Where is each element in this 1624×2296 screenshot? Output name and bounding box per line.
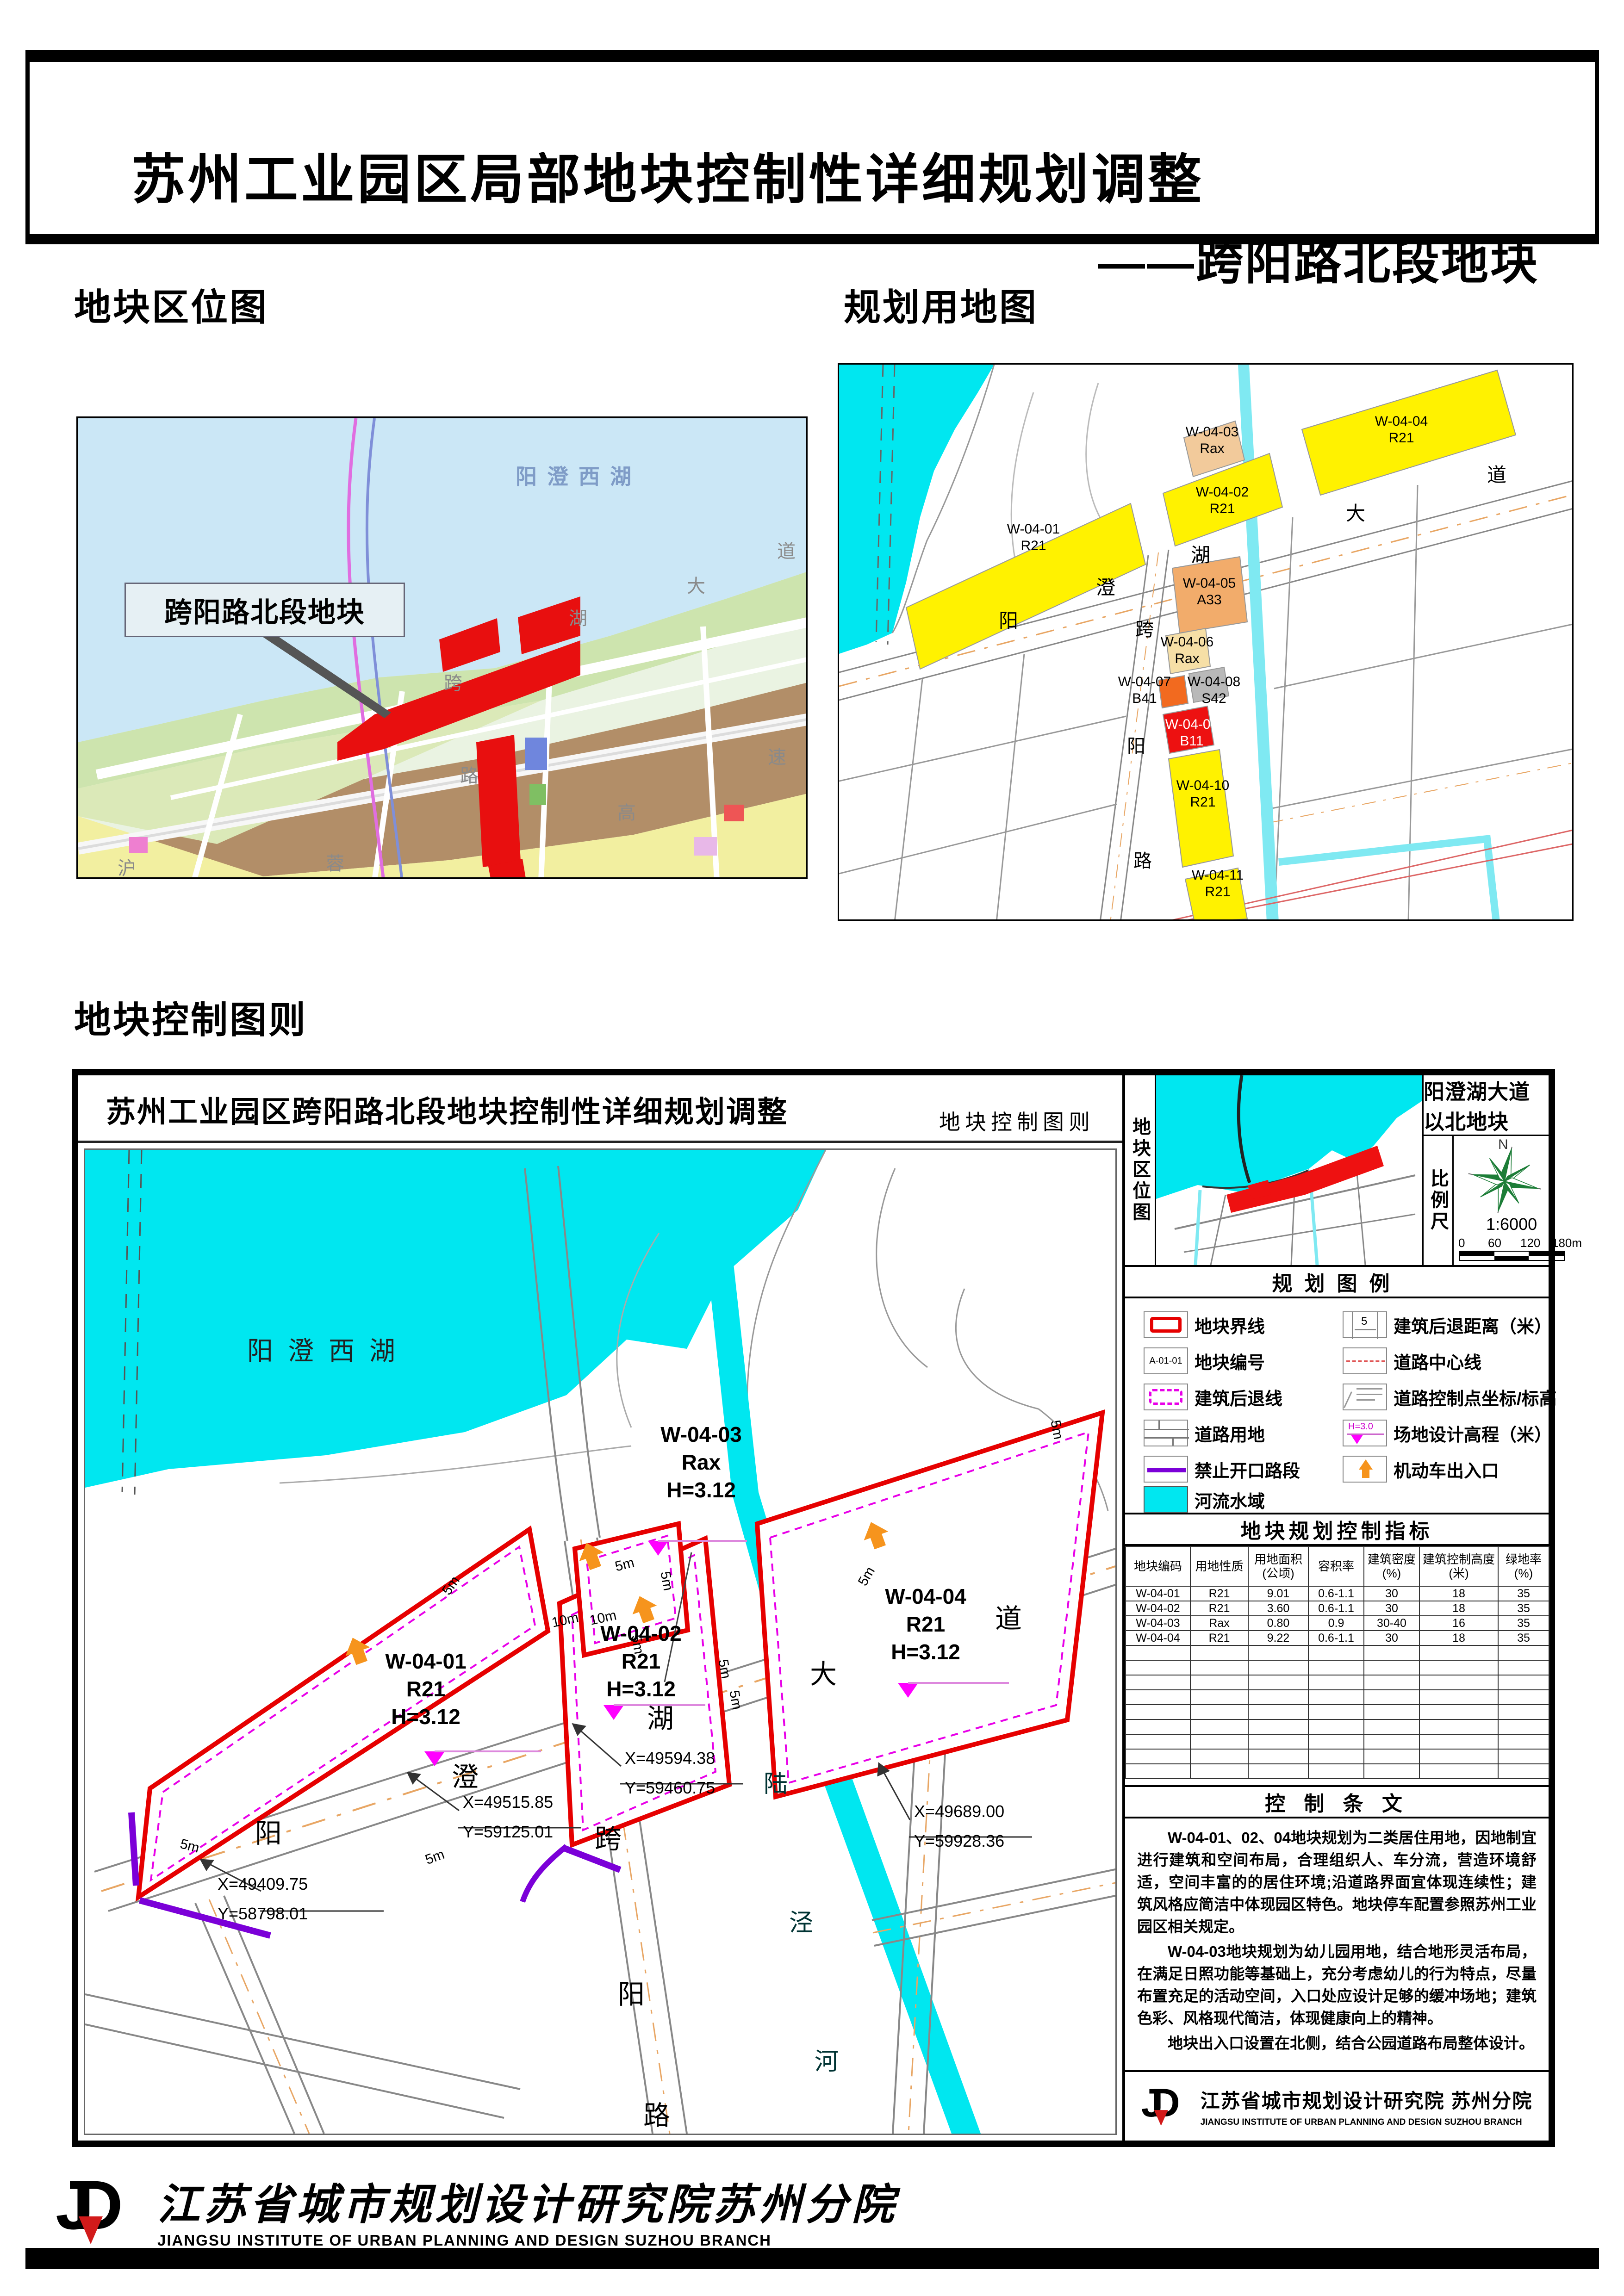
plot-label: W-04-11R21 xyxy=(1192,867,1244,900)
institute-name-cn: 江苏省城市规划设计研究院 苏州分院 xyxy=(1201,2085,1533,2114)
table-row: W-04-03Rax0.800.930-401635 xyxy=(1126,1616,1549,1631)
footer-institute-cn: 江苏省城市规划设计研究院苏州分院 xyxy=(157,2170,898,2232)
section-title-location-map: 地块区位图 xyxy=(74,278,268,331)
table-row-empty xyxy=(1126,1749,1549,1764)
road-char: 蓉 xyxy=(326,849,344,875)
provision-paragraph: 地块出入口设置在北侧，结合公园道路布局整体设计。 xyxy=(1137,2032,1537,2054)
table-row: W-04-01R219.010.6-1.1301835 xyxy=(1126,1586,1549,1601)
location-map: 阳澄西湖 跨阳路北段地块 湖 大 道 沪 蓉 高 速 跨 路 xyxy=(76,416,808,879)
institute-name-en: JIANGSU INSTITUTE OF URBAN PLANNING AND … xyxy=(1201,2117,1533,2128)
plot-label: W-04-05A33 xyxy=(1183,575,1236,608)
scale-tick: 60 xyxy=(1488,1236,1501,1250)
road-char: 高 xyxy=(617,798,636,825)
setback-distance-icon: 5 xyxy=(1343,1311,1387,1338)
road-char: 道 xyxy=(777,536,796,563)
control-chart-map: 阳澄西湖 W-04-01R21H=3.12 W-04-02R21H=3.12 W… xyxy=(84,1148,1117,2135)
indicators-title: 地块规划控制指标 xyxy=(1125,1514,1549,1546)
lake-label: 阳澄西湖 xyxy=(516,460,641,490)
legend-item: 道路中心线 xyxy=(1343,1347,1481,1374)
col-header: 用地性质 xyxy=(1190,1546,1248,1586)
road-land-icon xyxy=(1144,1420,1188,1446)
plot-label: W-04-03Rax xyxy=(1186,424,1239,457)
section-title-control-chart: 地块控制图则 xyxy=(74,990,307,1044)
road-control-point-icon xyxy=(1343,1384,1387,1410)
road-char: 道 xyxy=(995,1597,1022,1636)
setback-line-icon xyxy=(1144,1384,1188,1410)
legend-body: 地块界线 A-01-01 地块编号 建筑后退线 道路用地 xyxy=(1125,1298,1549,1514)
plot-label-W-04-04: W-04-04R21H=3.12 xyxy=(885,1582,966,1666)
col-header: 地块编码 xyxy=(1126,1546,1190,1586)
road-char: 路 xyxy=(643,2094,670,2133)
col-header: 建筑密度 (%) xyxy=(1364,1546,1419,1586)
table-row: W-04-04R219.220.6-1.1301835 xyxy=(1126,1631,1549,1645)
road-char: 跨 xyxy=(595,1817,622,1856)
road-char: 湖 xyxy=(569,603,587,630)
table-row-empty xyxy=(1126,1645,1549,1660)
subject-plot-callout: 跨阳路北段地块 xyxy=(124,583,405,637)
plot-code-icon: A-01-01 xyxy=(1144,1347,1188,1374)
plot-label-W-04-03: W-04-03RaxH=3.12 xyxy=(660,1421,741,1504)
table-row-empty xyxy=(1126,1734,1549,1749)
no-access-segment xyxy=(131,1812,136,1886)
scale-label: 比例尺 xyxy=(1425,1169,1451,1233)
panel-titlebar: 苏州工业园区跨阳路北段地块控制性详细规划调整 地块控制图则 xyxy=(78,1075,1122,1143)
sidebar-area-title: 阳澄湖大道以北地块 xyxy=(1424,1075,1549,1136)
legend-item: 禁止开口路段 xyxy=(1144,1456,1300,1483)
plot-label: W-04-04R21 xyxy=(1375,413,1428,447)
road-char: 澄 xyxy=(1096,572,1115,600)
road-char: 路 xyxy=(1133,846,1152,873)
river-char: 泾 xyxy=(789,1903,813,1938)
plot-label: W-04-10R21 xyxy=(1176,777,1230,811)
plot-label: W-04-02R21 xyxy=(1196,484,1249,517)
plot-label: W-04-09B11 xyxy=(1165,716,1219,750)
vehicle-entrance-icon xyxy=(1343,1456,1387,1483)
scale-tick: 0 xyxy=(1458,1236,1465,1250)
legend-item: 河流水域 xyxy=(1144,1486,1265,1513)
legend-item: 建筑后退线 xyxy=(1144,1384,1282,1410)
institute-logo: JD xyxy=(1141,2083,1192,2129)
legend-item: H=3.0 场地设计高程（米） xyxy=(1343,1420,1552,1446)
river-char: 河 xyxy=(815,2042,839,2077)
setback-label: 5m xyxy=(1047,1419,1066,1441)
col-header: 容积率 xyxy=(1308,1546,1364,1586)
scale-tick: 120 xyxy=(1520,1236,1540,1250)
panel-title: 苏州工业园区跨阳路北段地块控制性详细规划调整 xyxy=(106,1088,788,1131)
road-char: 大 xyxy=(687,571,705,598)
plan-sheet: { "header": { "title": "苏州工业园区局部地块控制性详细规… xyxy=(0,0,1624,2296)
page-subtitle: ——跨阳路北段地块 xyxy=(1098,225,1539,293)
road-char: 道 xyxy=(1487,459,1506,488)
road-char: 阳 xyxy=(999,605,1018,633)
coordinate-callout: X=49515.85Y=59125.01 xyxy=(463,1787,553,1847)
table-row-empty xyxy=(1126,1764,1549,1779)
setback-label: 5m xyxy=(715,1658,734,1680)
sidebar-location-label: 地块区位图 xyxy=(1126,1117,1153,1223)
indicators-table: 地块编码 用地性质 用地面积 (公顷) 容积率 建筑密度 (%) 建筑控制高度 … xyxy=(1125,1546,1549,1779)
road-char: 澄 xyxy=(452,1755,479,1794)
no-access-icon xyxy=(1144,1456,1188,1483)
col-header: 绿地率 (%) xyxy=(1498,1546,1549,1586)
indicators-table-wrap: 地块编码 用地性质 用地面积 (公顷) 容积率 建筑密度 (%) 建筑控制高度 … xyxy=(1125,1546,1549,1787)
road-char: 大 xyxy=(810,1652,837,1691)
plot-label: W-04-01R21 xyxy=(1007,521,1060,554)
road-char: 阳 xyxy=(1127,731,1145,758)
setback-label: 5m xyxy=(657,1570,676,1592)
institute-logo: JD xyxy=(56,2170,143,2249)
col-header: 建筑控制高度 (米) xyxy=(1419,1546,1498,1586)
footer-bar xyxy=(25,2248,1599,2269)
coordinate-callout: X=49689.00Y=59928.36 xyxy=(914,1797,1004,1856)
road-char: 湖 xyxy=(647,1697,674,1736)
table-row-empty xyxy=(1126,1719,1549,1734)
lake-label: 阳澄西湖 xyxy=(247,1330,410,1368)
plot-label: W-04-06Rax xyxy=(1161,634,1214,667)
road-char: 湖 xyxy=(1191,540,1210,568)
scale-tick: 180m xyxy=(1552,1236,1582,1250)
header-box: 苏州工业园区局部地块控制性详细规划调整 ——跨阳路北段地块 xyxy=(25,50,1599,244)
legend-title: 规划图例 xyxy=(1125,1267,1549,1298)
legend-item: 道路用地 xyxy=(1144,1420,1265,1446)
minimap-graphic xyxy=(1156,1075,1422,1265)
section-title-landuse-map: 规划用地图 xyxy=(844,278,1038,331)
plot-label-W-04-01: W-04-01R21H=3.12 xyxy=(385,1647,466,1731)
legend-item: 地块界线 xyxy=(1144,1311,1265,1338)
setback-label: 5m xyxy=(726,1689,745,1711)
footer-institute-en: JIANGSU INSTITUTE OF URBAN PLANNING AND … xyxy=(157,2232,898,2249)
sidebar-top-row: 地块区位图 阳澄湖大 xyxy=(1125,1075,1549,1267)
road-char: 跨 xyxy=(1135,614,1154,641)
subject-plot-strip xyxy=(476,735,521,867)
legend-item: 机动车出入口 xyxy=(1343,1456,1499,1483)
setback-label: 5m xyxy=(628,1634,647,1656)
provisions-body: W-04-01、02、04地块规划为二类居住用地，因地制宜进行建筑和空间布局，合… xyxy=(1125,1818,1549,2073)
table-row: W-04-02R213.600.6-1.1301835 xyxy=(1126,1601,1549,1616)
control-chart-panel: 苏州工业园区跨阳路北段地块控制性详细规划调整 地块控制图则 xyxy=(72,1069,1555,2147)
table-row-empty xyxy=(1126,1705,1549,1719)
road-centerline-icon xyxy=(1343,1347,1387,1374)
river-char: 陆 xyxy=(764,1764,788,1799)
table-row-empty xyxy=(1126,1660,1549,1675)
table-row-empty xyxy=(1126,1690,1549,1705)
plot-label-W-04-02: W-04-02R21H=3.12 xyxy=(600,1620,681,1703)
provision-paragraph: W-04-03地块规划为幼儿园用地，结合地形灵活布局，在满足日照功能等基础上，充… xyxy=(1137,1941,1537,2029)
plot-boundary-icon xyxy=(1144,1311,1188,1338)
coordinate-callout: X=49594.38Y=59460.75 xyxy=(625,1744,715,1803)
col-header: 用地面积 (公顷) xyxy=(1248,1546,1308,1586)
landuse-map: W-04-01R21 W-04-02R21 W-04-03Rax W-04-04… xyxy=(838,363,1574,921)
page-title: 苏州工业园区局部地块控制性详细规划调整 xyxy=(131,136,1204,214)
plot-label: W-04-07B41 xyxy=(1118,674,1171,707)
road-char: 阳 xyxy=(618,1973,645,2011)
legend-item: A-01-01 地块编号 xyxy=(1144,1347,1265,1374)
road-char: 阳 xyxy=(255,1812,282,1850)
coordinate-callout: X=49409.75Y=58798.01 xyxy=(218,1869,308,1929)
panel-subtitle: 地块控制图则 xyxy=(939,1105,1095,1136)
road-char: 跨 xyxy=(444,668,462,695)
road-char: 大 xyxy=(1346,498,1365,526)
scale-value: 1:6000 xyxy=(1486,1215,1537,1234)
legend-item: 5 建筑后退距离（米） xyxy=(1343,1311,1552,1338)
provision-paragraph: W-04-01、02、04地块规划为二类居住用地，因地制宜进行建筑和空间布局，合… xyxy=(1137,1827,1537,1938)
compass-cell: N xyxy=(1454,1136,1549,1265)
panel-sidebar: 地块区位图 阳澄湖大 xyxy=(1122,1075,1549,2141)
table-row-empty xyxy=(1126,1675,1549,1690)
compass-rose-icon xyxy=(1463,1145,1546,1215)
sidebar-institute: JD 江苏省城市规划设计研究院 苏州分院 JIANGSU INSTITUTE O… xyxy=(1125,2072,1549,2141)
provisions-title: 控 制 条 文 xyxy=(1125,1787,1549,1818)
road-char: 速 xyxy=(768,742,786,769)
road-char: 沪 xyxy=(118,853,136,879)
sidebar-minimap xyxy=(1156,1075,1424,1265)
scale-bar: 0 60 120 180m xyxy=(1459,1236,1566,1247)
site-elevation-icon: H=3.0 xyxy=(1343,1420,1387,1446)
road-char: 路 xyxy=(460,761,479,788)
page-footer: JD 江苏省城市规划设计研究院苏州分院 JIANGSU INSTITUTE OF… xyxy=(56,2170,898,2249)
plot-label: W-04-08S42 xyxy=(1188,674,1241,707)
water-icon xyxy=(1144,1486,1188,1513)
location-map-graphic xyxy=(78,418,808,879)
legend-item: 道路控制点坐标/标高 xyxy=(1343,1384,1557,1410)
